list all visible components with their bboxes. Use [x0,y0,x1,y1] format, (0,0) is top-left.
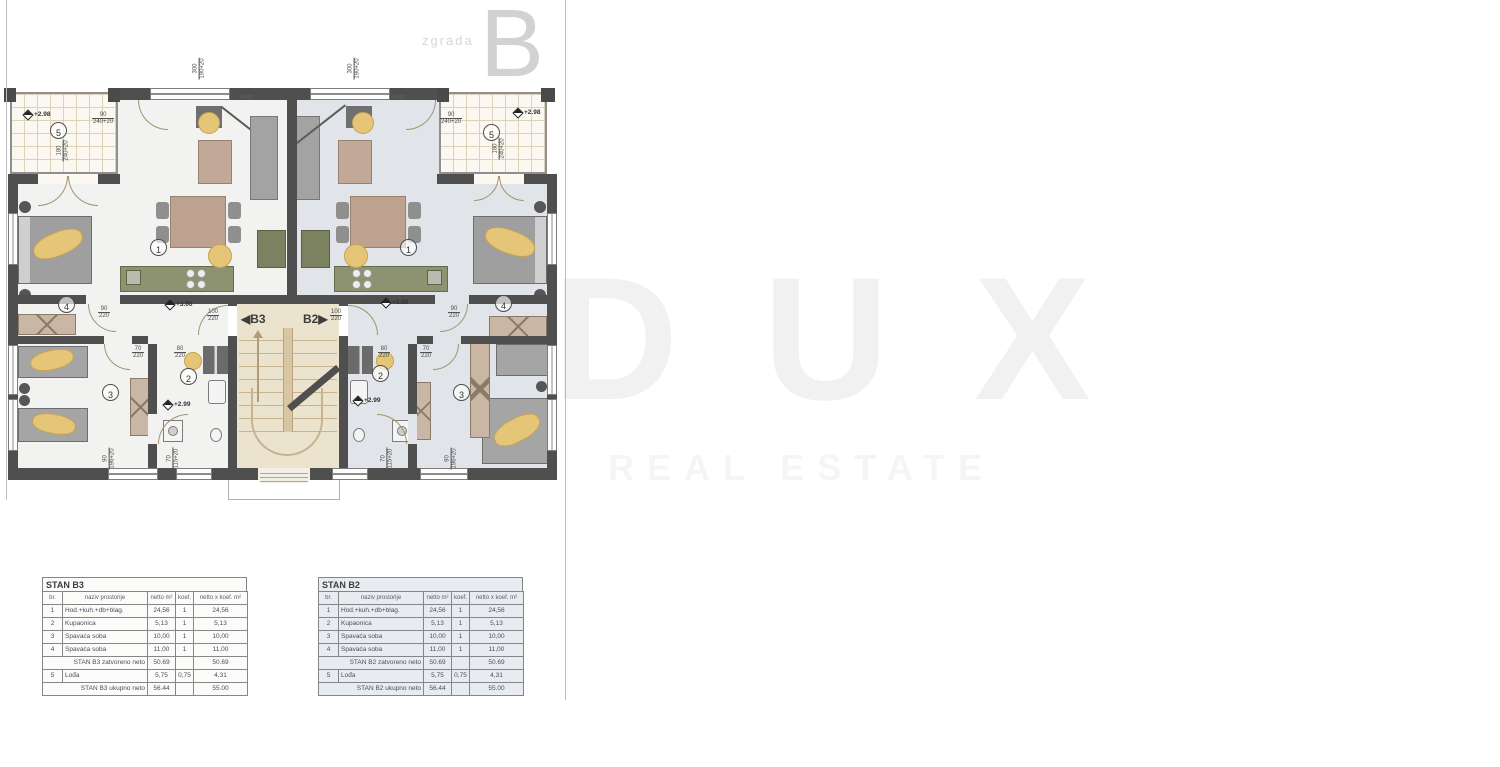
dimension-label: 90240+20 [92,112,114,125]
table-cell: 24,56 [424,605,452,618]
wall-bath-left [148,344,157,468]
pier [541,88,555,102]
table-cell: 4,31 [194,670,248,683]
table-cell: Lođa [63,670,148,683]
dimension-label: 80220 [378,346,390,359]
table-cell: 1 [43,605,63,618]
table-header-cell: netto m² [424,592,452,605]
elevation-marker: +2.99 [354,392,380,410]
table-cell: 1 [452,631,470,644]
bed-pillow [535,217,546,283]
table-cell: 4,31 [470,670,524,683]
table-cell: 1 [176,631,194,644]
plant [352,112,374,134]
kitchen-sink [427,270,442,285]
stair-up-arrowhead [253,330,263,338]
elevation-marker: +3.00 [166,296,192,314]
area-table-b3: STAN B3br.naziv prostorijenetto m²koef.n… [42,577,247,696]
table-cell: 50.69 [194,657,248,670]
window [8,213,18,265]
unit-label-b3: ◀B3 [241,312,266,326]
table-cell: STAN B3 zatvoreno neto [43,657,148,670]
table-cell: 0,75 [176,670,194,683]
table-cell: Spavaća soba [339,644,424,657]
window [176,468,212,480]
table-cell: 5,75 [424,670,452,683]
table-cell: 1 [452,644,470,657]
elevation-marker: +2.99 [164,396,190,414]
shower [348,346,373,374]
table-cell: 11,00 [148,644,176,657]
table-header-cell: br. [43,592,63,605]
window [547,345,557,395]
table-cell: 2 [43,618,63,631]
table-cell: Spavaća soba [339,631,424,644]
dimension-label: 100220 [330,309,342,322]
table-cell: STAN B2 zatvoreno neto [319,657,424,670]
table-header-cell: br. [319,592,339,605]
table-title: STAN B3 [42,577,247,591]
table-cell: 5,13 [470,618,524,631]
shower [203,346,228,374]
window [332,468,368,480]
table-cell [452,657,470,670]
hob-burner [363,280,372,289]
dimension-label: 70115+20 [166,448,179,470]
table-cell: 11,00 [470,644,524,657]
window [420,468,468,480]
wall-bath-right [408,344,417,468]
table-header-cell: netto m² [148,592,176,605]
table-header-cell: koef. [452,592,470,605]
room-number-bath-left: 2 [180,368,197,385]
toilet [210,428,222,442]
dimension-label: 70220 [420,346,432,359]
unit-label-b2: B2▶ [303,312,328,326]
dimension-label: 90220 [98,306,110,319]
watermark-tagline: REAL ESTATE [608,447,995,489]
entry-steps [260,470,308,483]
hob-burner [352,280,361,289]
dimension-label: 180240+20 [57,139,70,161]
table-cell: 50.69 [424,657,452,670]
door-opening-b3 [228,306,237,336]
tall-cabinet [301,230,330,268]
hob-burner [197,280,206,289]
table-cell: Hod.+kuh.+db+blag. [339,605,424,618]
chair [156,202,169,219]
table-cell: STAN B3 ukupno neto [43,683,148,696]
room-number-loggia-left: 5 [50,122,67,139]
window [150,88,230,100]
wall-party [287,88,297,303]
chair [336,202,349,219]
room-number-living-right: 1 [400,239,417,256]
nightstand [534,201,546,213]
window [108,468,158,480]
bed [496,344,548,376]
table-cell: 5,13 [148,618,176,631]
table-header-cell: koef. [176,592,194,605]
window [547,213,557,265]
table-cell: 4 [43,644,63,657]
window [8,399,18,451]
table-cell: Kupaonica [339,618,424,631]
table-cell: 10,00 [194,631,248,644]
chair [408,202,421,219]
room-number-living-left: 1 [150,239,167,256]
hob-burner [186,269,195,278]
chair [336,226,349,243]
table-cell: STAN B2 ukupno neto [319,683,424,696]
table-cell: 3 [43,631,63,644]
table-cell: 55.00 [194,683,248,696]
toilet [353,428,365,442]
dining-table [170,196,226,248]
table-cell [176,657,194,670]
parapet-note: P=20 [240,95,253,101]
window [310,88,390,100]
table-cell: 1 [176,618,194,631]
stair-up-arrow [257,336,259,402]
sofa [250,116,278,200]
table-cell: 0,75 [452,670,470,683]
floorplan-sheet: zgrada B D U X REAL ESTATE [0,0,1500,767]
table-cell: 11,00 [194,644,248,657]
desk [338,140,372,184]
door-opening [435,295,469,304]
window [547,399,557,451]
table-cell: Hod.+kuh.+db+blag. [63,605,148,618]
hob-burner [197,269,206,278]
table-cell: 24,56 [470,605,524,618]
window [8,345,18,395]
table-cell: 24,56 [148,605,176,618]
table-cell: 10,00 [424,631,452,644]
table-cell: 5 [43,670,63,683]
table-cell: 24,56 [194,605,248,618]
nightstand [19,395,30,406]
table-cell: 1 [319,605,339,618]
room-number-bed3-right: 3 [453,384,470,401]
dimension-label: 90240+20 [440,112,462,125]
table-cell: 5,75 [148,670,176,683]
table-header-cell: netto x koef. m² [470,592,524,605]
chair [228,202,241,219]
table-cell: 1 [452,618,470,631]
table-header-cell: naziv prostorije [339,592,424,605]
wardrobe [489,316,547,337]
room-number-bed3-left: 3 [102,384,119,401]
table-cell: 5,13 [194,618,248,631]
table-cell: 1 [176,605,194,618]
table-cell: 50.69 [470,657,524,670]
table-cell: 1 [452,605,470,618]
table-cell: 5 [319,670,339,683]
dimension-label: 100220 [207,309,219,322]
table-cell: 50.69 [148,657,176,670]
desk [198,140,232,184]
door-opening [104,336,132,344]
pier [437,88,449,102]
nightstand [536,381,547,392]
table-cell: Spavaća soba [63,644,148,657]
parapet-note: P=20 [392,95,405,101]
dimension-label: 80220 [174,346,186,359]
table-cell: Kupaonica [63,618,148,631]
table-cell: 3 [319,631,339,644]
tall-cabinet [257,230,286,268]
table-title: STAN B2 [318,577,523,591]
dimension-label: 70220 [132,346,144,359]
elevation-marker: +2.98 [24,106,50,124]
dimension-label: 300190+20 [193,57,206,79]
entry-porch-outline [228,480,340,500]
hob-burner [363,269,372,278]
room-number-bed4-right: 4 [495,295,512,312]
dimension-label: 180240+20 [493,137,506,159]
bathroom-sink [208,380,226,404]
dimension-label: 90196+20 [445,447,458,469]
hob-burner [186,280,195,289]
table-cell: 5,13 [424,618,452,631]
table-cell: 11,00 [424,644,452,657]
table-cell: 10,00 [470,631,524,644]
plant [198,112,220,134]
table-cell: Lođa [339,670,424,683]
kitchen-sink [126,270,141,285]
pier [108,88,120,102]
sheet-frame-left [6,0,7,500]
nightstand [19,383,30,394]
wardrobe [470,340,490,438]
door-opening [433,336,461,344]
table-header-cell: netto x koef. m² [194,592,248,605]
nightstand [19,201,31,213]
plant [344,244,368,268]
wardrobe [18,314,76,335]
room-number-bath-right: 2 [372,365,389,382]
watermark-brand: D U X [552,252,1109,427]
elevation-marker: +3.00 [382,294,408,312]
dimension-label: 70115+20 [380,448,393,470]
hob-burner [352,269,361,278]
elevation-marker: +2.98 [514,104,540,122]
table-cell: 4 [319,644,339,657]
area-table-b2: STAN B2br.naziv prostorijenetto m²koef.n… [318,577,523,696]
door-opening [408,414,417,444]
table-cell: 56.44 [424,683,452,696]
table-header-cell: naziv prostorije [63,592,148,605]
bed-pillow [19,217,30,283]
sheet-frame-right [565,0,566,700]
table-cell [452,683,470,696]
floor-plan: 5 5 1 1 4 4 3 3 2 2 +2.98 +2.98 +3.00 +3… [0,0,600,520]
table-cell: 55.00 [470,683,524,696]
table-cell: 1 [176,644,194,657]
table-cell: 10,00 [148,631,176,644]
room-number-bed4-left: 4 [58,296,75,313]
door-opening [86,295,120,304]
chair [228,226,241,243]
plant [208,244,232,268]
door-opening [148,414,157,444]
table-cell: 56.44 [148,683,176,696]
table-cell: 2 [319,618,339,631]
dining-table [350,196,406,248]
dimension-label: 300190+20 [348,57,361,79]
table-cell: Spavaća soba [63,631,148,644]
dimension-label: 90196+20 [103,447,116,469]
dimension-label: 90220 [448,306,460,319]
table-cell [176,683,194,696]
